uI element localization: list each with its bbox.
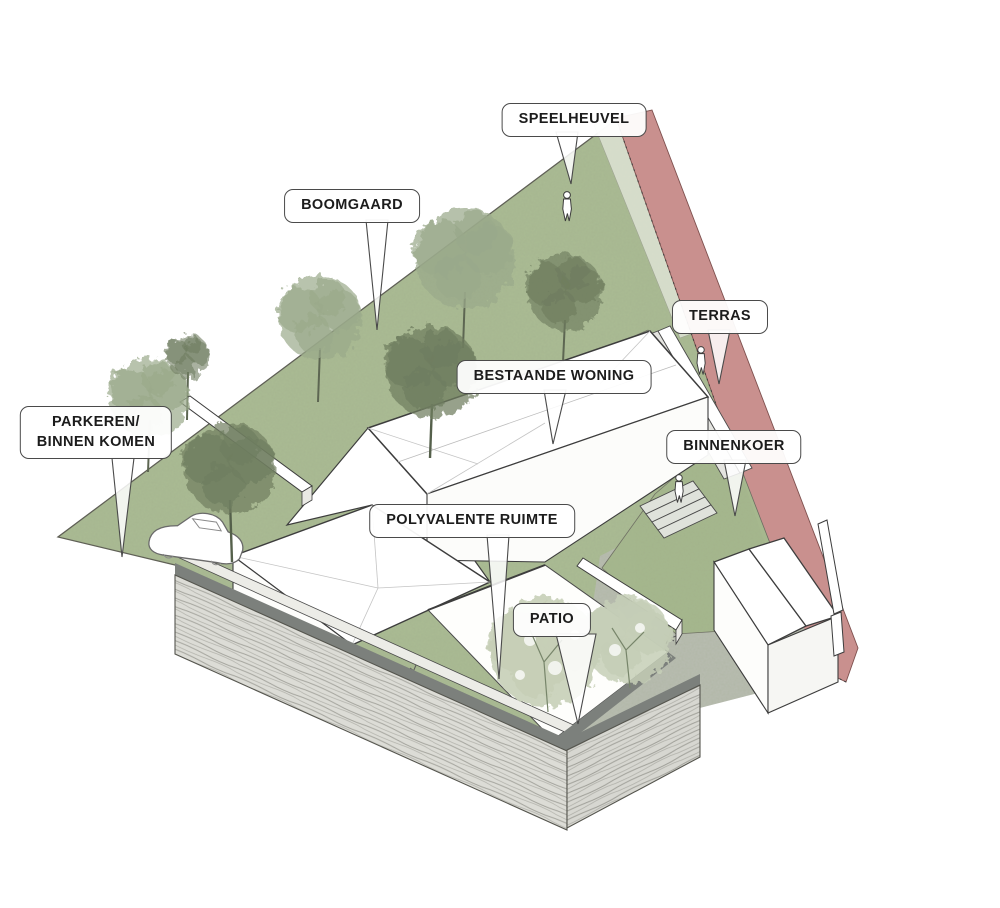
label-parkeren-line1: PARKEREN/ bbox=[52, 414, 140, 430]
label-binnenkoer: BINNENKOER bbox=[666, 430, 801, 464]
label-speelheuvel: SPEELHEUVEL bbox=[502, 103, 647, 137]
label-boomgaard-text: BOOMGAARD bbox=[301, 197, 403, 213]
label-bestaande-woning-text: BESTAANDE WONING bbox=[474, 368, 635, 384]
label-bestaande-woning: BESTAANDE WONING bbox=[457, 360, 652, 394]
label-patio: PATIO bbox=[513, 603, 591, 637]
label-parkeren-binnenkomen: PARKEREN/ BINNEN KOMEN bbox=[20, 406, 172, 459]
label-binnenkoer-text: BINNENKOER bbox=[683, 438, 784, 454]
label-terras-text: TERRAS bbox=[689, 308, 751, 324]
label-parkeren-line2: BINNEN KOMEN bbox=[37, 433, 155, 453]
label-polyvalente-ruimte: POLYVALENTE RUIMTE bbox=[369, 504, 575, 538]
label-polyvalente-ruimte-text: POLYVALENTE RUIMTE bbox=[386, 512, 558, 528]
label-speelheuvel-text: SPEELHEUVEL bbox=[519, 111, 630, 127]
label-patio-text: PATIO bbox=[530, 611, 574, 627]
label-terras: TERRAS bbox=[672, 300, 768, 334]
site-diagram-canvas: SPEELHEUVEL BOOMGAARD TERRAS BESTAANDE W… bbox=[0, 0, 1000, 908]
label-boomgaard: BOOMGAARD bbox=[284, 189, 420, 223]
